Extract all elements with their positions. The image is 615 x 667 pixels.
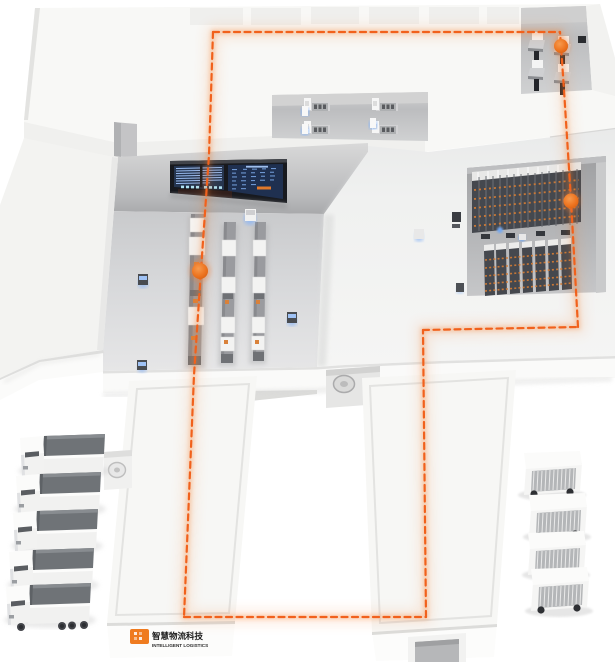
svg-text:INTELLIGENT LOGISTICS: INTELLIGENT LOGISTICS [152,643,208,648]
svg-text:智慧物流科技: 智慧物流科技 [151,631,204,641]
